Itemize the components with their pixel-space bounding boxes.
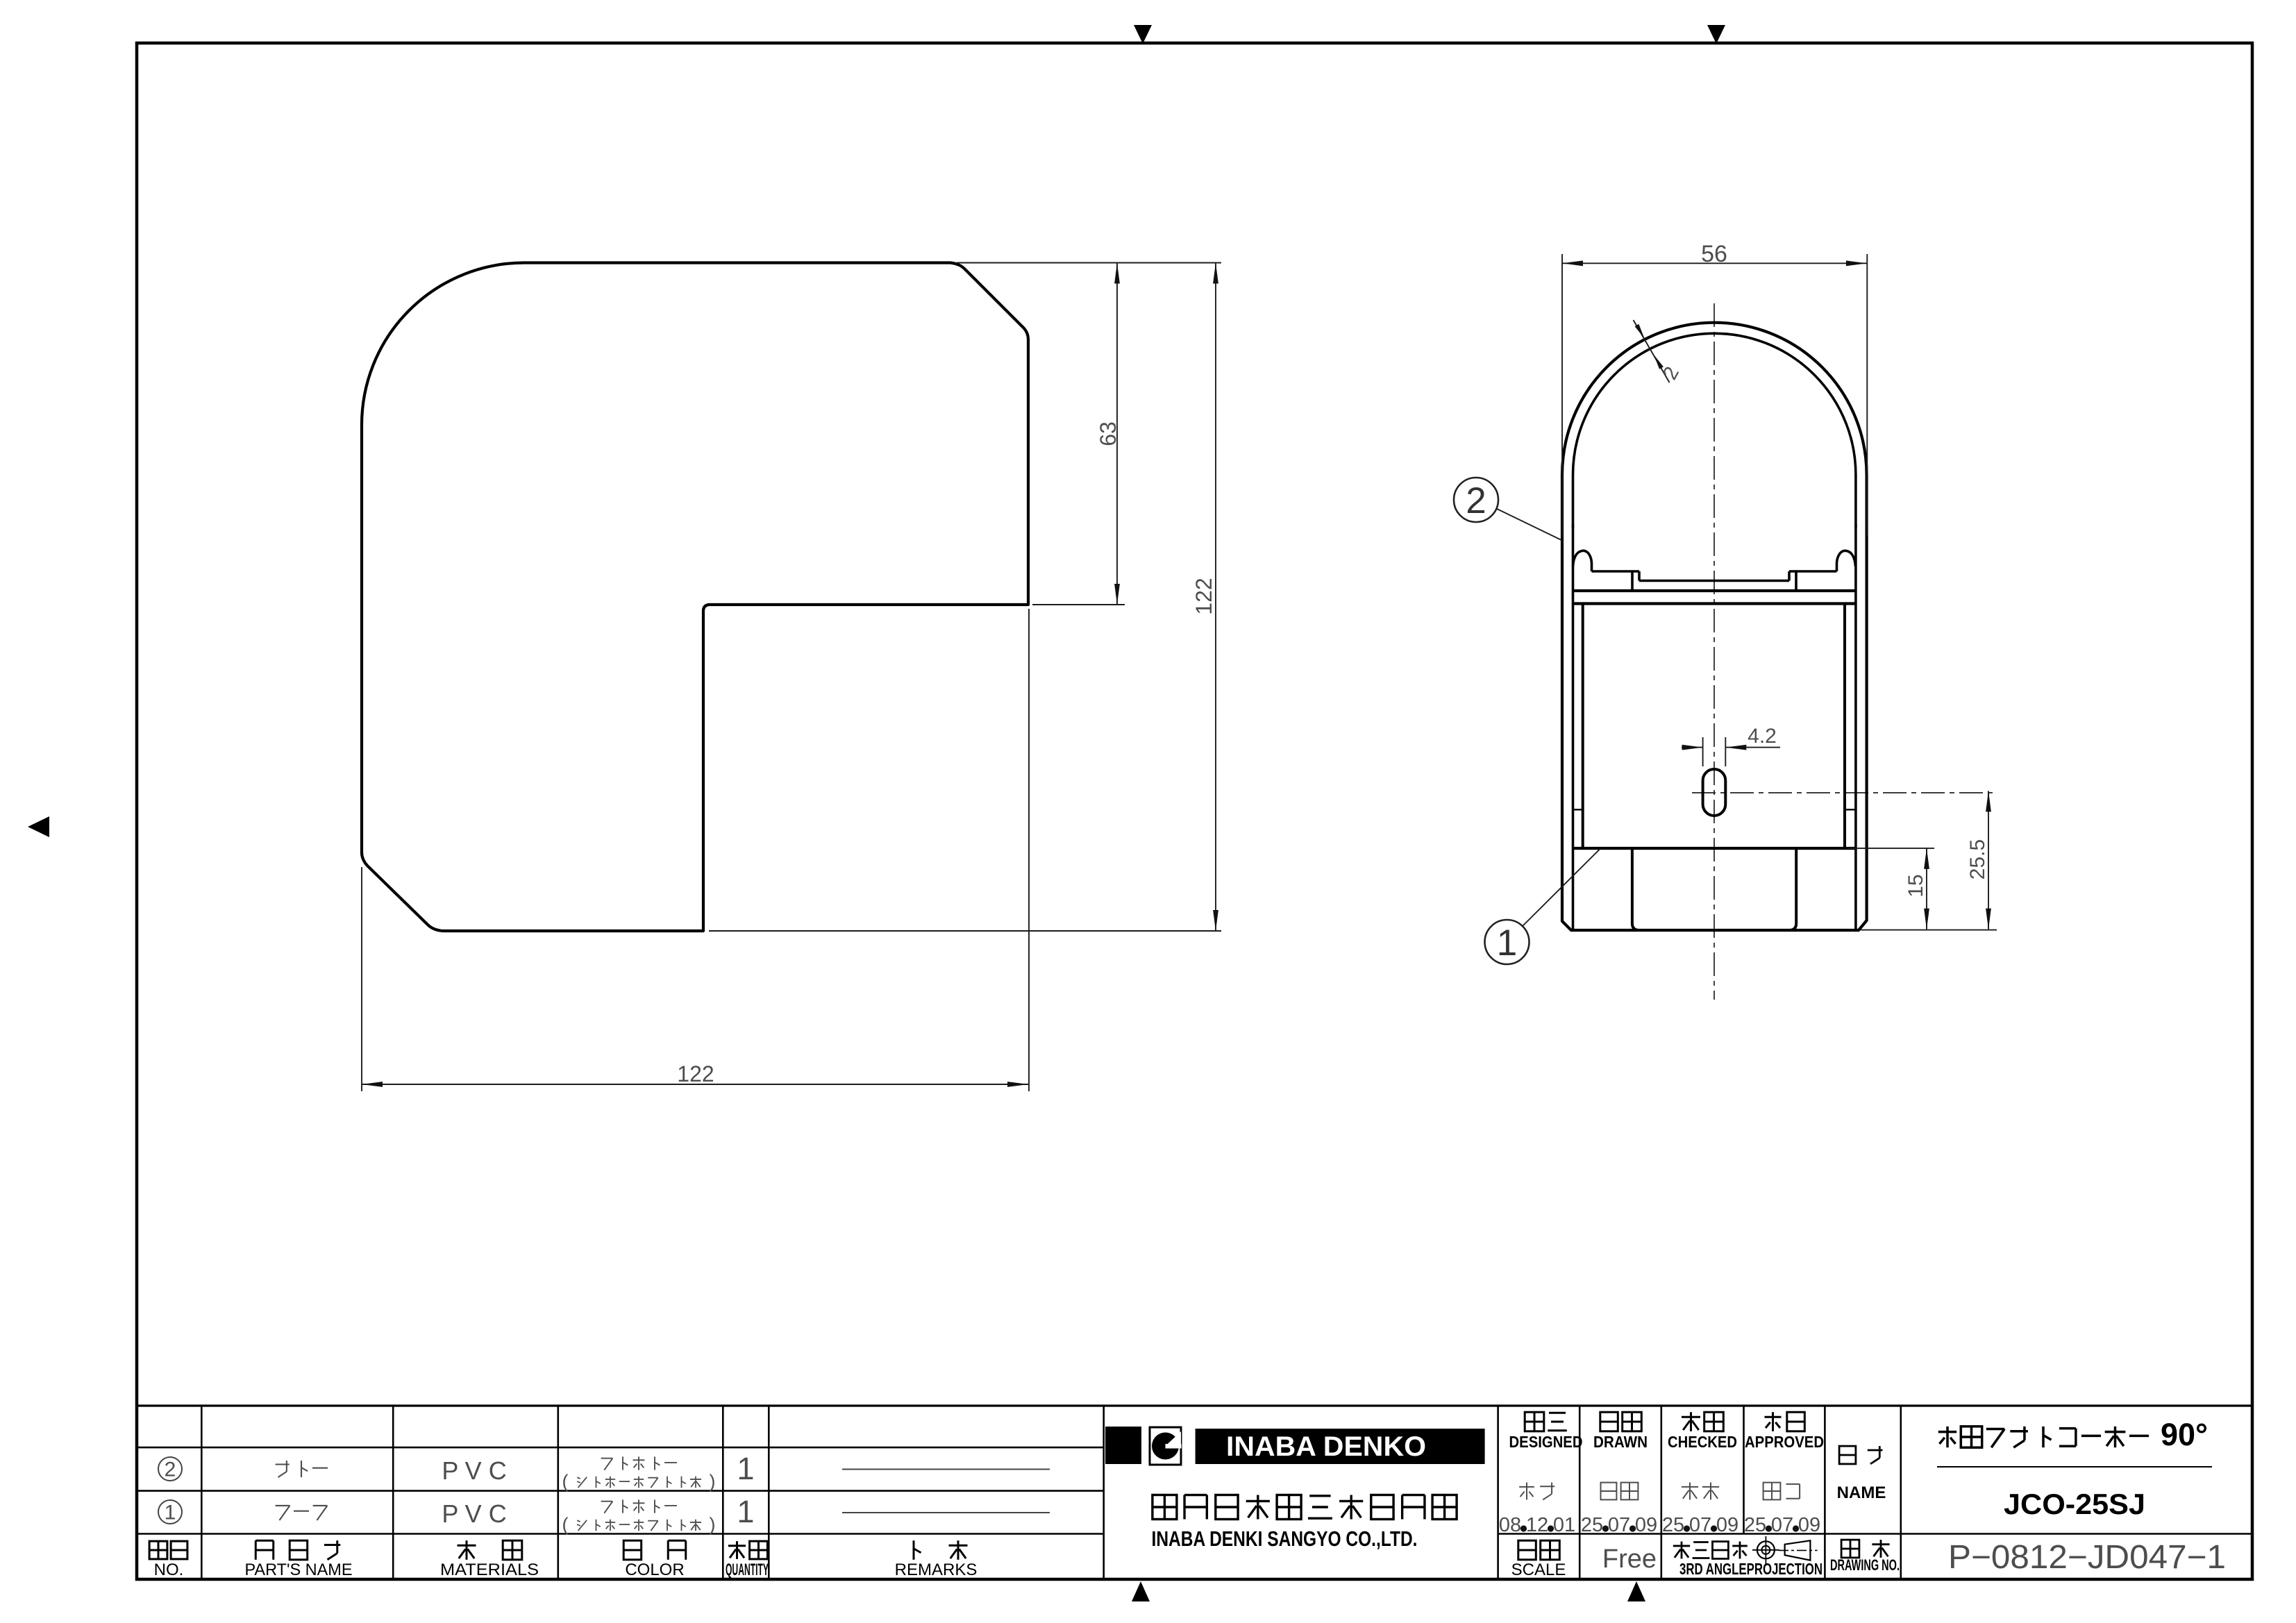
svg-text:07: 07 [1689,1514,1711,1536]
svg-text:P V C: P V C [442,1456,506,1485]
svg-text:07: 07 [1608,1514,1630,1536]
svg-text:90°: 90° [2161,1417,2208,1452]
svg-text:): ) [710,1471,716,1492]
svg-text:25: 25 [1662,1514,1684,1536]
svg-text:09: 09 [1635,1514,1657,1536]
svg-text:INABA DENKI SANGYO CO.,LTD.: INABA DENKI SANGYO CO.,LTD. [1152,1527,1418,1551]
svg-text:Free: Free [1602,1545,1657,1574]
svg-text:1: 1 [737,1494,754,1529]
svg-text:4.2: 4.2 [1748,725,1777,748]
svg-text:NAME: NAME [1837,1483,1886,1502]
svg-text:15: 15 [1904,874,1927,897]
svg-text:(: ( [562,1471,569,1492]
svg-text:CHECKED: CHECKED [1668,1433,1737,1451]
svg-text:08: 08 [1499,1514,1521,1536]
svg-text:07: 07 [1771,1514,1793,1536]
svg-text:): ) [710,1514,716,1535]
svg-text:JCO-25SJ: JCO-25SJ [2004,1488,2145,1520]
svg-text:P V C: P V C [442,1499,506,1528]
svg-text:1: 1 [1497,923,1517,964]
svg-text:SCALE: SCALE [1511,1561,1566,1579]
svg-text:12: 12 [1526,1514,1548,1536]
svg-text:APPROVED: APPROVED [1745,1433,1824,1451]
svg-text:3RD ANGLEPROJECTION: 3RD ANGLEPROJECTION [1679,1560,1822,1578]
svg-text:DRAWN: DRAWN [1593,1433,1648,1451]
svg-text:09: 09 [1716,1514,1738,1536]
svg-text:DRAWING NO.: DRAWING NO. [1830,1556,1900,1574]
svg-text:25: 25 [1744,1514,1766,1536]
svg-text:INABA DENKO: INABA DENKO [1226,1431,1426,1462]
svg-text:(: ( [562,1514,569,1535]
svg-text:1: 1 [737,1451,754,1486]
svg-text:DESIGNED: DESIGNED [1509,1433,1583,1451]
svg-text:PART'S NAME: PART'S NAME [245,1561,353,1579]
svg-text:1: 1 [165,1502,176,1524]
svg-text:QUANTITY: QUANTITY [726,1561,769,1579]
svg-text:122: 122 [1191,578,1216,614]
svg-text:56: 56 [1701,241,1727,267]
svg-text:NO.: NO. [154,1561,184,1579]
svg-text:2: 2 [1466,480,1486,521]
svg-text:01: 01 [1553,1514,1575,1536]
svg-text:COLOR: COLOR [625,1561,684,1579]
svg-text:25: 25 [1581,1514,1603,1536]
svg-text:25.5: 25.5 [1966,839,1989,880]
svg-text:REMARKS: REMARKS [895,1561,978,1579]
svg-text:09: 09 [1798,1514,1820,1536]
svg-text:MATERIALS: MATERIALS [440,1561,539,1579]
svg-text:63: 63 [1096,421,1121,446]
svg-text:P−0812−JD047−1: P−0812−JD047−1 [1948,1539,2226,1576]
svg-text:122: 122 [677,1061,714,1086]
svg-text:2: 2 [165,1458,176,1481]
